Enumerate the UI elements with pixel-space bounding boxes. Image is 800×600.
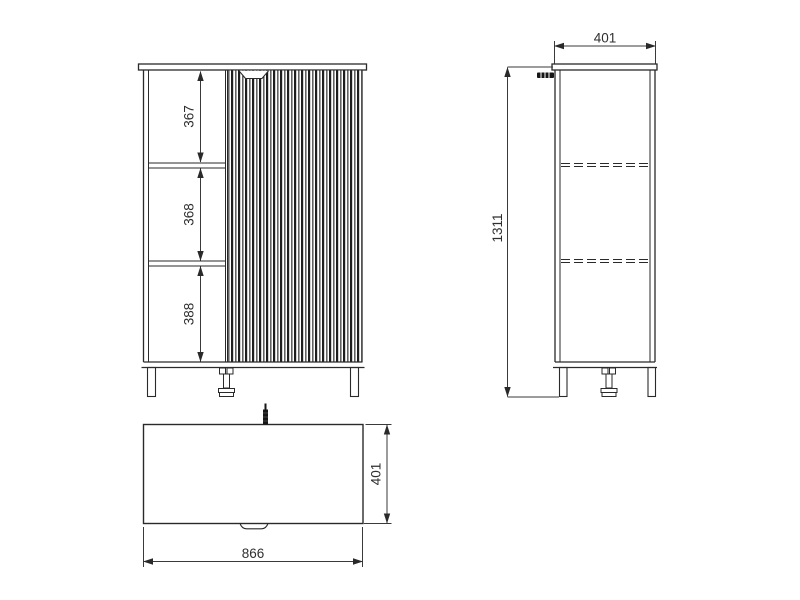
front-door-slats — [228, 71, 362, 363]
front-shelf-1 — [149, 163, 226, 168]
top-handle-notch — [240, 524, 268, 529]
dim-label-866: 866 — [242, 546, 265, 561]
dim-label-388: 388 — [182, 303, 197, 326]
hinge-pin — [263, 404, 268, 425]
side-hidden-shelf-2 — [561, 260, 648, 263]
dim-label-368: 368 — [182, 203, 197, 226]
side-mount-screw — [537, 73, 554, 79]
top-view — [144, 404, 364, 529]
side-hidden-shelf-1 — [561, 164, 648, 167]
front-top-panel — [139, 64, 367, 70]
front-left-leg — [148, 368, 156, 397]
technical-drawing-canvas: 367 368 388 — [0, 0, 800, 600]
front-view — [139, 64, 367, 397]
side-back-leg — [648, 368, 656, 397]
dim-label-401-side: 401 — [594, 31, 617, 46]
side-view-dimensions — [508, 41, 656, 397]
front-right-leg — [351, 368, 359, 397]
cabinet-dimension-drawing: 367 368 388 — [0, 0, 800, 600]
side-top-panel — [552, 64, 657, 70]
dim-label-1311: 1311 — [490, 213, 505, 242]
top-view-dimensions — [144, 425, 392, 568]
front-center-foot — [219, 368, 235, 397]
side-center-foot — [601, 368, 617, 397]
dim-label-401-top: 401 — [369, 463, 384, 486]
front-shelf-2 — [149, 261, 226, 266]
top-view-outline — [144, 425, 364, 524]
dim-label-367: 367 — [182, 105, 197, 128]
side-front-leg — [560, 368, 568, 397]
side-view — [537, 64, 657, 397]
